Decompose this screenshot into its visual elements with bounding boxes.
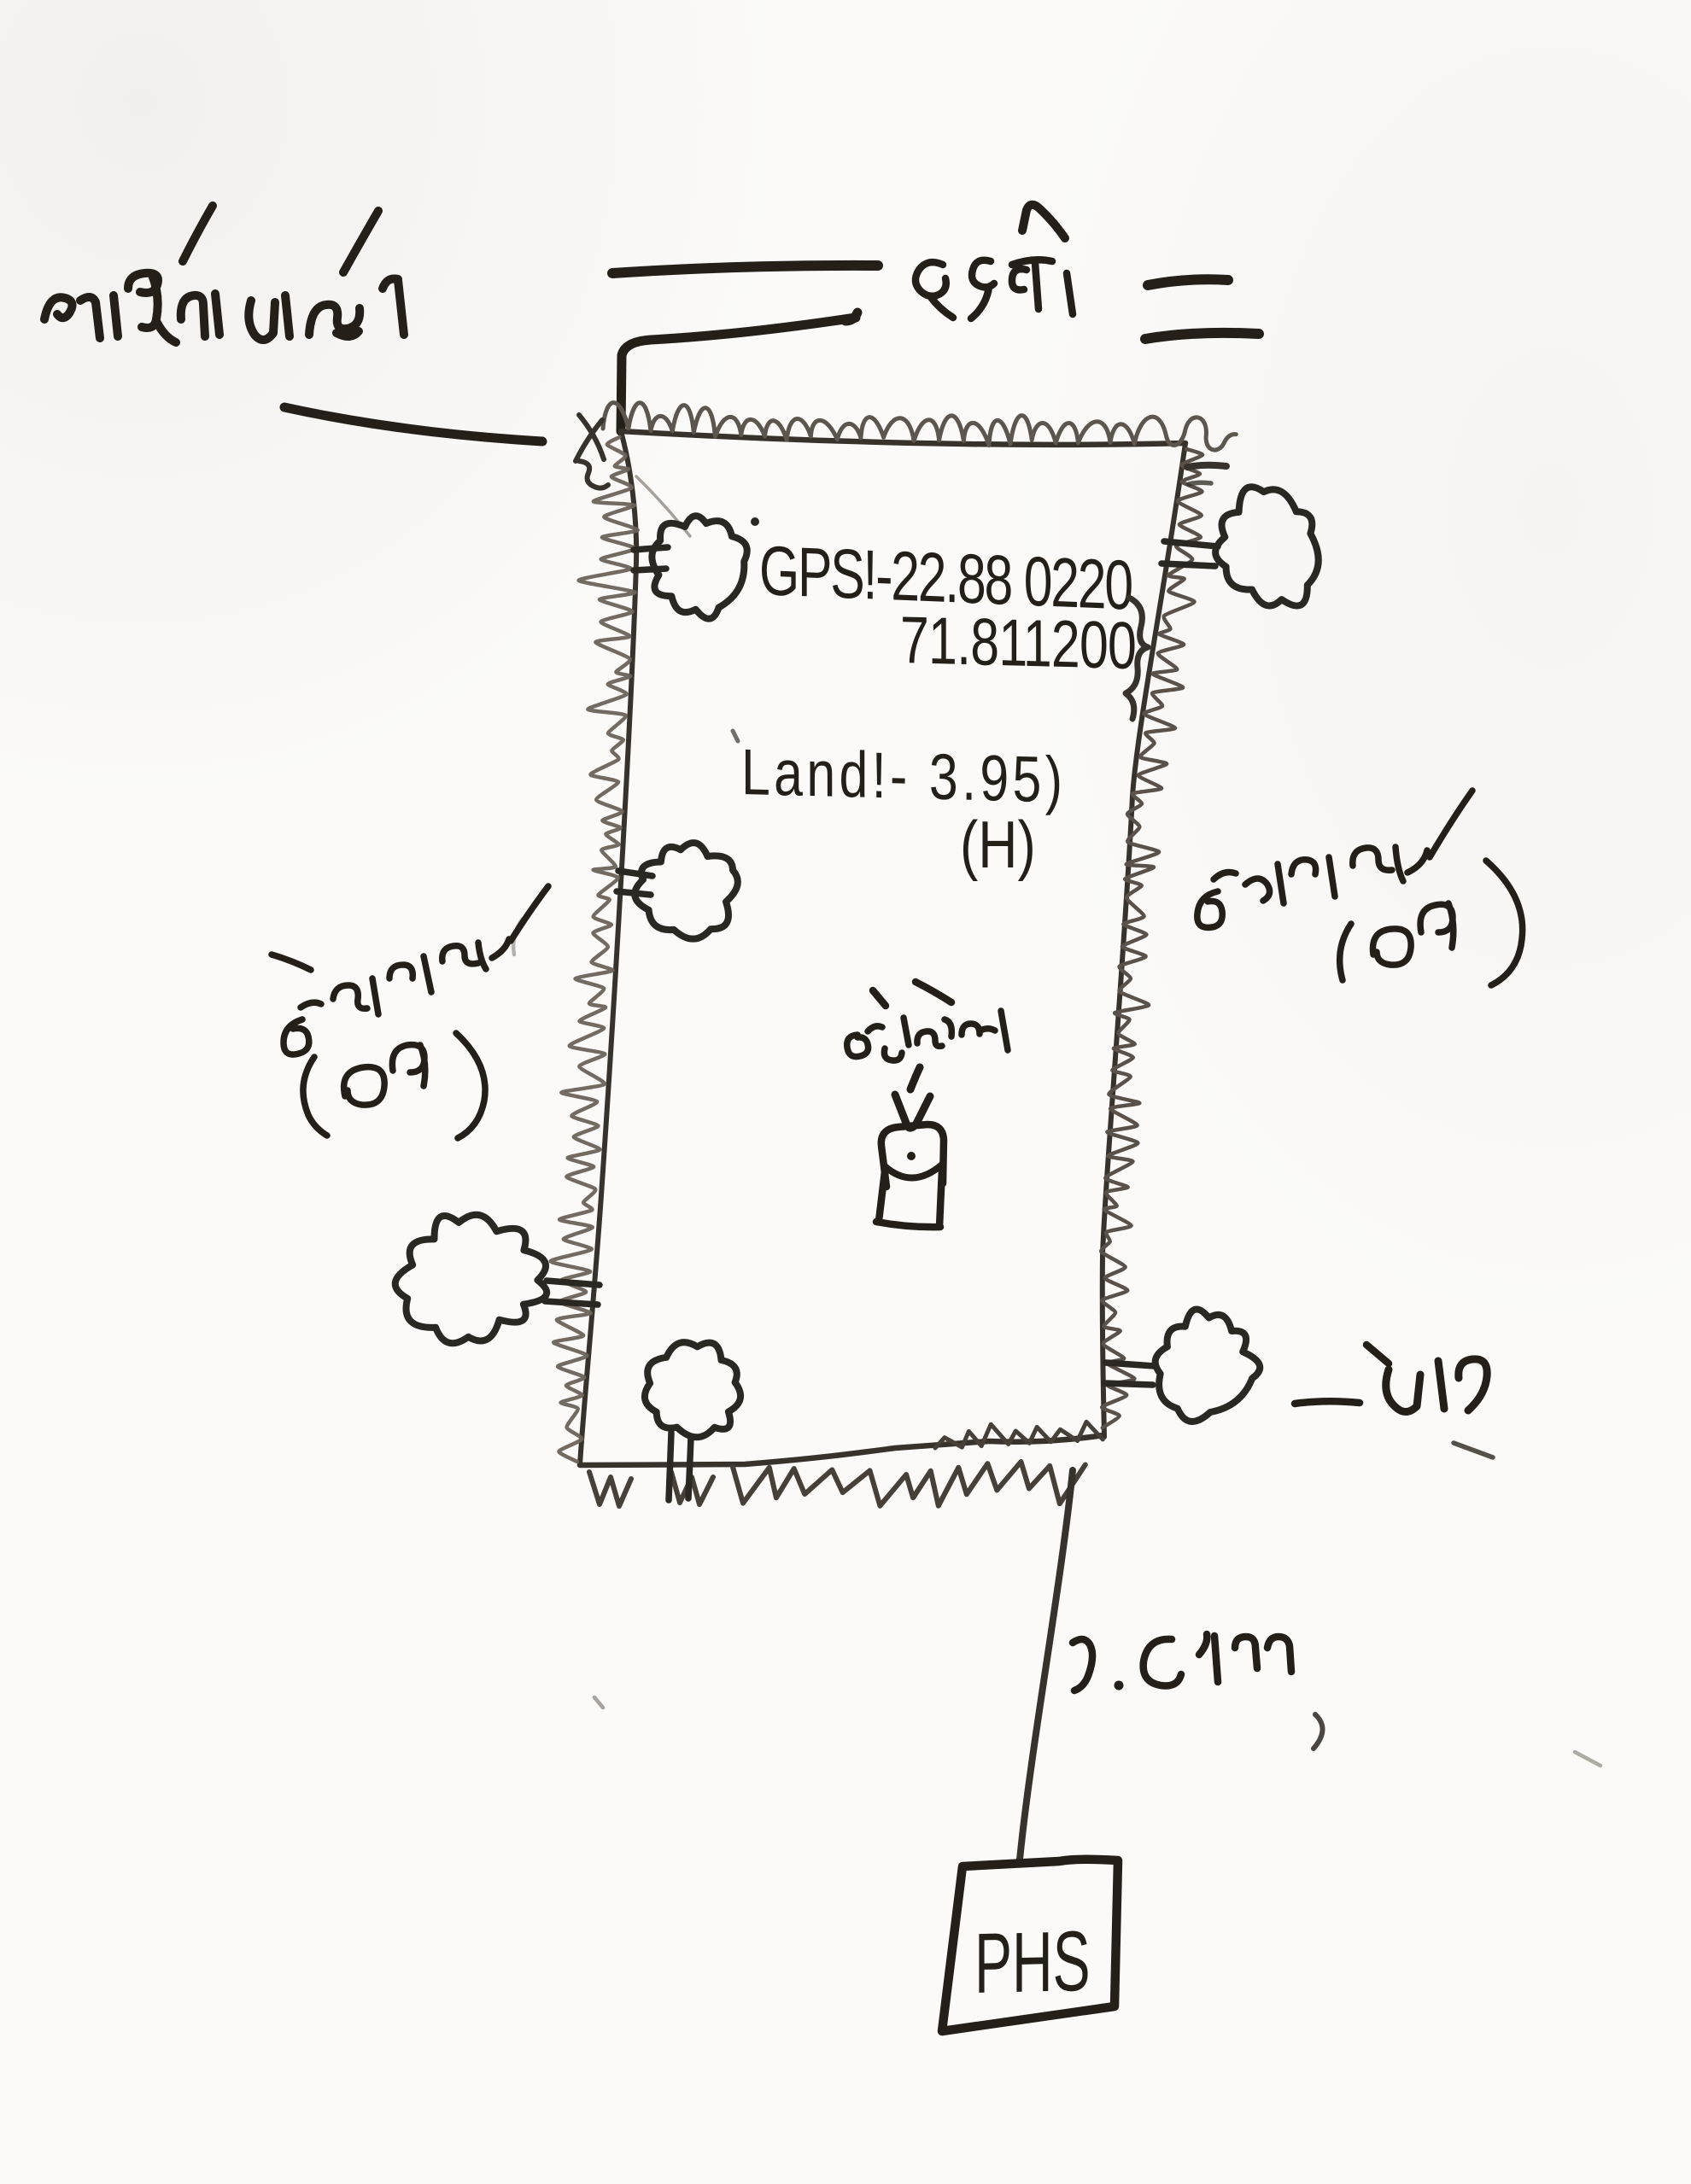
svg-text:Land!- 3.95): Land!- 3.95) — [741, 736, 1062, 816]
svg-text:PHS: PHS — [974, 1912, 1091, 2011]
svg-text:71.811200: 71.811200 — [900, 603, 1137, 683]
svg-text:(H): (H) — [960, 808, 1036, 882]
